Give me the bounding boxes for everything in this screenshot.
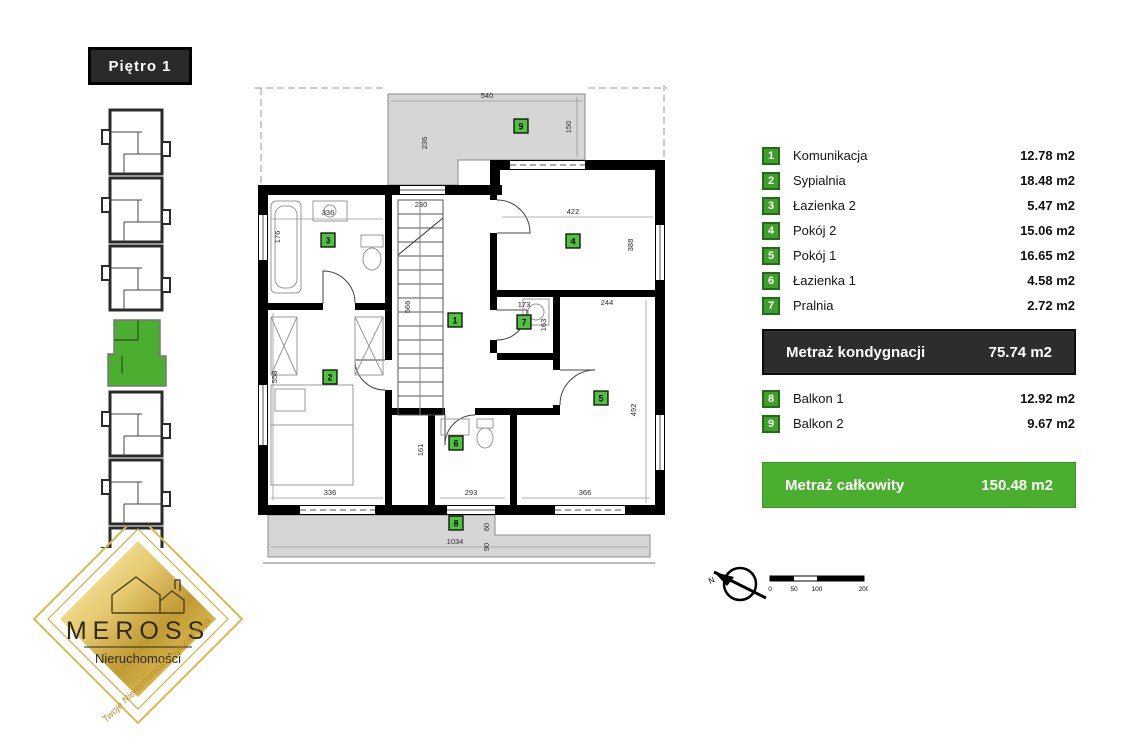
room-area: 5.47 m2 — [1027, 198, 1075, 213]
furniture — [271, 201, 549, 485]
legend-row: 3Łazienka 25.47 m2 — [762, 193, 1075, 218]
room-badge-8: 8 — [449, 516, 463, 530]
legend-row: 4Pokój 215.06 m2 — [762, 218, 1075, 243]
room-area: 2.72 m2 — [1027, 298, 1075, 313]
scale-bar: 0 50 100 200 — [768, 570, 868, 596]
svg-text:540: 540 — [481, 91, 494, 100]
svg-text:558: 558 — [270, 371, 279, 384]
svg-text:200: 200 — [859, 586, 868, 593]
svg-text:50: 50 — [790, 586, 798, 593]
room-name: Komunikacja — [793, 148, 867, 163]
walls — [258, 160, 665, 515]
grand-total-bar: Metraż całkowity 150.48 m2 — [762, 462, 1076, 508]
floorplan-sheet: Piętro 1 — [0, 0, 1128, 752]
svg-text:9: 9 — [518, 122, 523, 132]
svg-text:8: 8 — [453, 519, 458, 529]
room-area: 16.65 m2 — [1020, 248, 1075, 263]
legend-row: 1Komunikacja12.78 m2 — [762, 143, 1075, 168]
room-legend: 1Komunikacja12.78 m2 2Sypialnia18.48 m2 … — [762, 143, 1075, 318]
agency-logo: MEROSS Nieruchomości Twoje Nieruchomości… — [28, 527, 263, 752]
floor-plan-drawing: 540 150 236 336 176 230 422 388 566 173 … — [255, 85, 670, 565]
svg-text:163: 163 — [539, 319, 548, 332]
svg-text:N: N — [707, 575, 716, 586]
svg-text:5: 5 — [598, 394, 603, 404]
room-name: Łazienka 2 — [793, 198, 856, 213]
svg-text:2: 2 — [327, 373, 332, 383]
legend-row: 5Pokój 116.65 m2 — [762, 243, 1075, 268]
highlighted-unit — [108, 320, 166, 386]
room-badge-1: 1 — [448, 313, 462, 327]
legend-badge: 2 — [762, 172, 780, 190]
floor-total-label: Metraż kondygnacji — [786, 344, 925, 361]
room-area: 4.58 m2 — [1027, 273, 1075, 288]
svg-text:293: 293 — [465, 488, 478, 497]
legend-row: 6Łazienka 14.58 m2 — [762, 268, 1075, 293]
grand-total-area: 150.48 m2 — [981, 477, 1053, 494]
room-area: 12.78 m2 — [1020, 148, 1075, 163]
legend-row: 8Balkon 112.92 m2 — [762, 386, 1075, 411]
room-area: 15.06 m2 — [1020, 223, 1075, 238]
svg-text:366: 366 — [579, 488, 592, 497]
legend-badge: 9 — [762, 415, 780, 433]
room-name: Pralnia — [793, 298, 833, 313]
svg-text:7: 7 — [521, 318, 526, 328]
legend-row: 2Sypialnia18.48 m2 — [762, 168, 1075, 193]
room-name: Balkon 1 — [793, 391, 844, 406]
room-name: Sypialnia — [793, 173, 846, 188]
legend-badge: 8 — [762, 390, 780, 408]
room-name: Pokój 2 — [793, 223, 836, 238]
svg-text:244: 244 — [601, 298, 614, 307]
svg-text:336: 336 — [324, 488, 337, 497]
room-badge-9: 9 — [514, 119, 528, 133]
room-area: 18.48 m2 — [1020, 173, 1075, 188]
svg-text:100: 100 — [812, 586, 823, 593]
legend-badge: 4 — [762, 222, 780, 240]
balcony-legend: 8Balkon 112.92 m2 9Balkon 29.67 m2 — [762, 386, 1075, 436]
svg-text:173: 173 — [518, 300, 531, 309]
compass-icon: N — [700, 558, 770, 610]
legend-badge: 7 — [762, 297, 780, 315]
svg-text:90: 90 — [482, 543, 491, 551]
svg-text:150: 150 — [564, 121, 573, 134]
legend-row: 7Pralnia2.72 m2 — [762, 293, 1075, 318]
svg-text:492: 492 — [629, 404, 638, 417]
svg-text:161: 161 — [416, 444, 425, 457]
grand-total-label: Metraż całkowity — [785, 477, 904, 494]
legend-badge: 3 — [762, 197, 780, 215]
site-plan-thumbnail — [98, 108, 178, 548]
svg-text:4: 4 — [570, 237, 575, 247]
svg-text:230: 230 — [415, 200, 428, 209]
room-badge-2: 2 — [323, 370, 337, 384]
legend-badge: 6 — [762, 272, 780, 290]
svg-text:1: 1 — [452, 316, 457, 326]
room-name: Łazienka 1 — [793, 273, 856, 288]
windows — [259, 161, 664, 514]
svg-text:3: 3 — [325, 236, 330, 246]
svg-text:0: 0 — [768, 586, 772, 593]
floor-total-bar: Metraż kondygnacji 75.74 m2 — [762, 329, 1076, 375]
room-badge-7: 7 — [517, 315, 531, 329]
room-name: Balkon 2 — [793, 416, 844, 431]
room-badge-6: 6 — [449, 436, 463, 450]
floor-selector-tab[interactable]: Piętro 1 — [88, 47, 192, 85]
legend-badge: 1 — [762, 147, 780, 165]
room-badge-5: 5 — [594, 391, 608, 405]
room-badge-3: 3 — [321, 233, 335, 247]
room-badges: 1 2 3 4 5 6 7 8 9 — [321, 119, 608, 530]
legend-row: 9Balkon 29.67 m2 — [762, 411, 1075, 436]
svg-text:176: 176 — [273, 231, 282, 244]
svg-text:566: 566 — [403, 301, 412, 314]
svg-text:422: 422 — [567, 207, 580, 216]
room-name: Pokój 1 — [793, 248, 836, 263]
svg-text:6: 6 — [453, 439, 458, 449]
balcony-2-area — [388, 94, 585, 185]
room-area: 9.67 m2 — [1027, 416, 1075, 431]
floor-total-area: 75.74 m2 — [989, 344, 1052, 361]
legend-badge: 5 — [762, 247, 780, 265]
svg-text:1034: 1034 — [447, 537, 464, 546]
svg-text:60: 60 — [482, 523, 491, 531]
svg-text:336: 336 — [322, 208, 335, 217]
room-area: 12.92 m2 — [1020, 391, 1075, 406]
svg-text:236: 236 — [420, 137, 429, 150]
svg-text:388: 388 — [626, 239, 635, 252]
room-badge-4: 4 — [566, 234, 580, 248]
